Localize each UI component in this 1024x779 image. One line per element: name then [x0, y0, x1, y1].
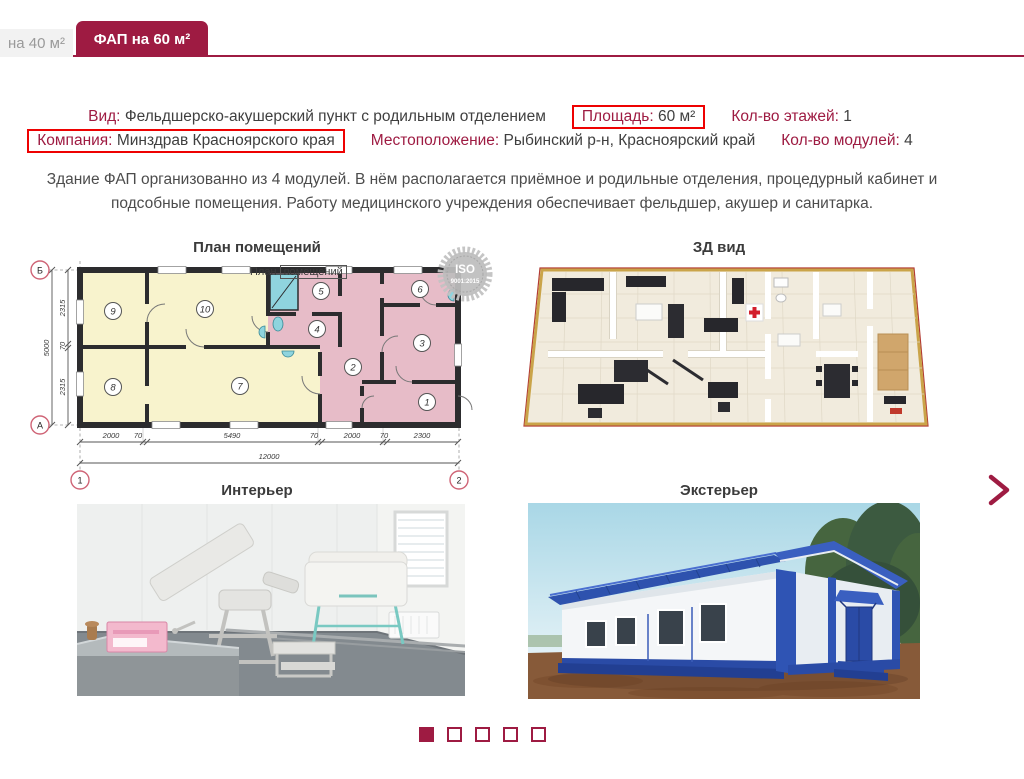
plan-dims-bottom: 2000 70 5490 70 2000 70 2300	[77, 428, 461, 445]
view-3d-image	[518, 264, 933, 437]
wooden-mortar	[85, 621, 99, 640]
spec-vid-label: Вид:	[88, 108, 120, 125]
spec-location-value: Рыбинский р-н, Красноярский край	[504, 132, 756, 149]
spec-modules-label: Кол-во модулей:	[781, 132, 900, 149]
description-line-1: Здание ФАП организованно из 4 модулей. В…	[42, 168, 942, 192]
plan-pink-zone-bottom	[320, 347, 458, 425]
interior-photo	[77, 504, 465, 701]
svg-text:5000: 5000	[42, 339, 51, 357]
spec-floors-label: Кол-во этажей:	[731, 108, 839, 125]
svg-text:7: 7	[237, 382, 243, 393]
page: на 40 м² ФАП на 60 м² Вид: Фельдшерско-а…	[0, 0, 1024, 779]
iso-badge-svg: ISO 9001:2015	[436, 245, 494, 303]
carousel-dot-4[interactable]	[503, 727, 518, 742]
svg-text:70: 70	[134, 431, 143, 440]
description-line-2: подсобные помещения. Работу медицинского…	[42, 192, 942, 216]
spec-company-highlight: Компания: Минздрав Красноярского края	[27, 129, 344, 153]
svg-text:6: 6	[417, 285, 423, 296]
carousel-next-button[interactable]	[985, 473, 1013, 509]
exterior-title: Экстерьер	[518, 482, 920, 499]
svg-text:12000: 12000	[259, 452, 281, 461]
spec-floors-value: 1	[843, 108, 852, 125]
svg-text:2000: 2000	[343, 431, 362, 440]
iso-badge-line2: 9001:2015	[451, 279, 480, 285]
spec-vid-value: Фельдшерско-акушерский пункт с родильным…	[125, 108, 546, 125]
svg-text:2300: 2300	[413, 431, 432, 440]
spec-company-label: Компания:	[37, 132, 112, 149]
plan-dims-left: 2315 70 2315 5000	[42, 267, 71, 428]
spec-floors: Кол-во этажей: 1	[731, 108, 852, 126]
iso-badge-line1: ISO	[455, 264, 475, 276]
carousel-dots	[0, 727, 964, 742]
view-3d-title: ЗД вид	[518, 239, 920, 256]
spec-area-value: 60 м²	[658, 108, 695, 125]
svg-text:8: 8	[110, 383, 116, 394]
carousel-dot-1[interactable]	[419, 727, 434, 742]
interior-photo-svg	[77, 504, 465, 696]
view-3d-svg	[518, 264, 933, 432]
spec-company-value: Минздрав Красноярского края	[117, 132, 335, 149]
spec-vid: Вид: Фельдшерско-акушерский пункт с роди…	[88, 108, 546, 126]
spec-modules: Кол-во модулей: 4	[781, 132, 912, 150]
carousel-dot-2[interactable]	[447, 727, 462, 742]
svg-text:2: 2	[456, 476, 461, 486]
carousel-dot-3[interactable]	[475, 727, 490, 742]
svg-text:4: 4	[314, 325, 319, 336]
carousel-dot-5[interactable]	[531, 727, 546, 742]
pink-box	[107, 622, 167, 652]
plan-dim-total-width: 12000	[77, 452, 461, 466]
spec-area-highlight: Площадь: 60 м²	[572, 105, 705, 129]
svg-text:2315: 2315	[58, 299, 67, 318]
tab-fap-40[interactable]: на 40 м²	[0, 29, 73, 57]
exterior-photo-svg	[528, 503, 920, 699]
svg-text:Б: Б	[37, 266, 43, 276]
svg-text:2: 2	[349, 363, 356, 374]
svg-text:3: 3	[419, 339, 425, 350]
svg-text:1: 1	[77, 476, 82, 486]
svg-text:5490: 5490	[224, 431, 242, 440]
svg-text:2315: 2315	[58, 378, 67, 397]
spec-row-2: Компания: Минздрав Красноярского края Ме…	[0, 129, 940, 153]
building-description: Здание ФАП организованно из 4 модулей. В…	[42, 168, 942, 216]
iso-badge: ISO 9001:2015	[436, 245, 494, 303]
floor-plan-image: 1 2 3 4 5 6 7 8 9 10	[26, 256, 488, 501]
spec-modules-value: 4	[904, 132, 913, 149]
svg-text:5: 5	[318, 287, 324, 298]
plan-watermark-word-1: План	[250, 266, 277, 278]
svg-text:9: 9	[110, 307, 116, 318]
spec-row-1: Вид: Фельдшерско-акушерский пункт с роди…	[0, 105, 940, 129]
spec-area-label: Площадь:	[582, 108, 654, 125]
spec-location-label: Местоположение:	[371, 132, 499, 149]
svg-text:1: 1	[424, 398, 429, 409]
floor-plan-title: План помещений	[26, 239, 488, 256]
svg-text:70: 70	[380, 431, 389, 440]
floor-plan-svg: 1 2 3 4 5 6 7 8 9 10	[26, 256, 488, 496]
tab-fap-40-label: на 40 м²	[8, 35, 65, 52]
svg-text:2000: 2000	[102, 431, 121, 440]
tab-bar: на 40 м² ФАП на 60 м²	[0, 0, 1024, 57]
plan-watermark-text: План помещений	[250, 266, 347, 278]
tab-fap-60[interactable]: ФАП на 60 м²	[76, 21, 208, 57]
svg-text:А: А	[37, 421, 43, 431]
tab-fap-60-label: ФАП на 60 м²	[94, 31, 191, 48]
chevron-right-icon	[986, 473, 1012, 507]
svg-text:10: 10	[200, 305, 211, 316]
plan-watermark-word-2: помещений	[280, 265, 347, 279]
svg-text:70: 70	[310, 431, 319, 440]
spec-location: Местоположение: Рыбинский р-н, Красноярс…	[371, 132, 756, 150]
exterior-photo	[528, 503, 920, 704]
svg-text:70: 70	[58, 341, 67, 350]
